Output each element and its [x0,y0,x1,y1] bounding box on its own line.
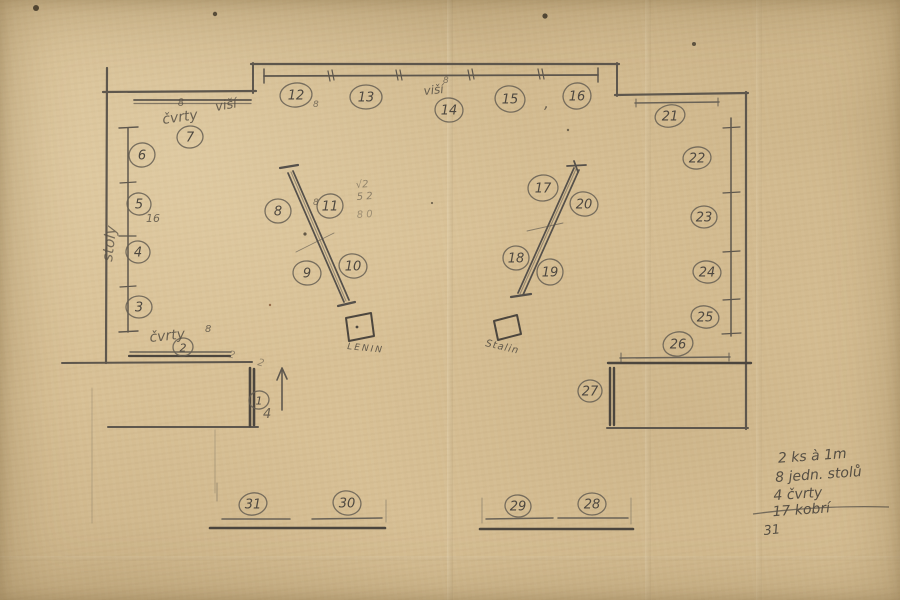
seat-number: 6 [138,149,146,164]
seat-marker: 20 [568,189,600,218]
plan-label: 4 [263,407,271,422]
seat-number: 31 [245,498,262,513]
seat-marker: 26 [661,329,695,359]
seat-marker: 18 [503,246,529,270]
seat-number: 10 [345,260,362,275]
seat-number: 11 [322,200,339,215]
plan-label: 2 [227,349,236,361]
construction-lines [92,388,215,523]
bottom-tables [210,483,633,529]
scanned-floor-plan: 1234567891011121314151617181920212223242… [0,0,900,600]
right-stage-block [608,353,751,425]
inventory-notes: 2 ks à 1m 8 jedn. stolů 4 čvrty 17 kobrí [768,445,864,520]
seat-number: 29 [510,500,527,515]
pencil-dot [356,326,359,329]
plan-label: , [544,93,549,112]
plan-label: 16 [146,212,160,225]
seat-number: 20 [576,198,593,213]
lenin-diagonal-row [280,165,355,306]
seat-marker: 29 [504,494,532,519]
seat-number: 4 [134,246,142,261]
plan-label: √2 [355,179,368,191]
seat-marker: 27 [577,379,603,403]
plan-label: 8 [443,76,449,86]
floor-plan-drawing: 1234567891011121314151617181920212223242… [0,0,900,600]
stalin-monument [494,315,521,340]
seat-number: 7 [186,131,195,146]
plan-label: viší [214,96,240,115]
seat-number: 21 [662,110,679,125]
plan-label: 5 2 [356,191,373,203]
seat-marker: 22 [682,146,712,171]
seat-number: 22 [689,152,706,167]
plan-label: 8 [313,100,319,110]
seat-marker: 3 [126,296,152,318]
seat-number: 9 [303,267,311,282]
seat-marker: 24 [692,260,722,285]
plan-label: 8 0 [356,209,373,221]
plan-label: čvrty [161,107,199,128]
seat-number: 14 [441,104,458,119]
right-tick-line [722,118,741,336]
plan-label: stoly [98,224,120,263]
seat-marker: 28 [578,493,606,515]
seat-marker: 17 [527,174,560,203]
seat-number: 16 [569,90,586,105]
plan-label: 8 [177,97,184,109]
note-line: 2 ks à 1m [777,446,847,467]
seat-number: 26 [670,338,687,353]
seat-marker: 11 [315,192,345,221]
seat-marker: 16 [561,80,594,111]
seat-marker: 23 [691,206,717,228]
seat-number: 28 [584,498,601,513]
seat-number: 17 [535,182,552,197]
seat-number: 18 [508,252,525,267]
seat-marker: 10 [337,251,369,280]
seat-marker: 7 [176,125,204,150]
seat-number: 30 [339,497,356,512]
seat-marker: 31 [237,490,269,517]
seat-number: 12 [288,89,305,104]
seat-marker: 21 [653,102,687,130]
seat-number: 24 [699,266,716,281]
seat-marker: 4 [125,240,151,264]
seat-marker: 15 [493,83,528,115]
alcove-table-row [264,68,598,83]
seat-marker: 19 [536,258,565,287]
seat-number: 5 [135,198,143,213]
seat-number: 15 [502,93,519,108]
lenin-monument [346,313,374,341]
seat-number: 27 [582,385,599,400]
seat-number: 8 [274,205,282,220]
note-line: 17 kobrí [772,500,833,520]
seat-markers: 1234567891011121314151617181920212223242… [125,80,722,518]
seat-number: 19 [542,266,559,281]
seat-marker: 8 [265,199,291,223]
seat-marker: 14 [434,97,464,124]
seat-number: 13 [358,91,375,106]
seat-marker: 13 [350,85,382,109]
seat-marker: 25 [689,303,721,330]
seat-marker: 6 [127,141,157,170]
seat-marker: 30 [331,488,363,517]
seat-number: 25 [697,311,714,326]
seat-number: 1 [256,395,263,408]
plan-label: Stalin [484,338,520,356]
plan-label: LENIN [347,342,385,356]
plan-label: 8 [205,324,211,335]
note-line: 8 jedn. stolů [775,464,863,486]
left-stage-block [250,368,254,426]
seat-marker: 9 [292,260,322,287]
seat-marker: 12 [279,81,313,108]
seat-number: 23 [696,211,713,226]
seat-number: 3 [135,301,143,316]
plan-label: 8 [313,198,319,208]
seat-number: 2 [180,342,187,355]
notes-total: 31 [763,522,781,539]
up-arrow [277,368,287,410]
plan-label: 2 [256,357,265,369]
